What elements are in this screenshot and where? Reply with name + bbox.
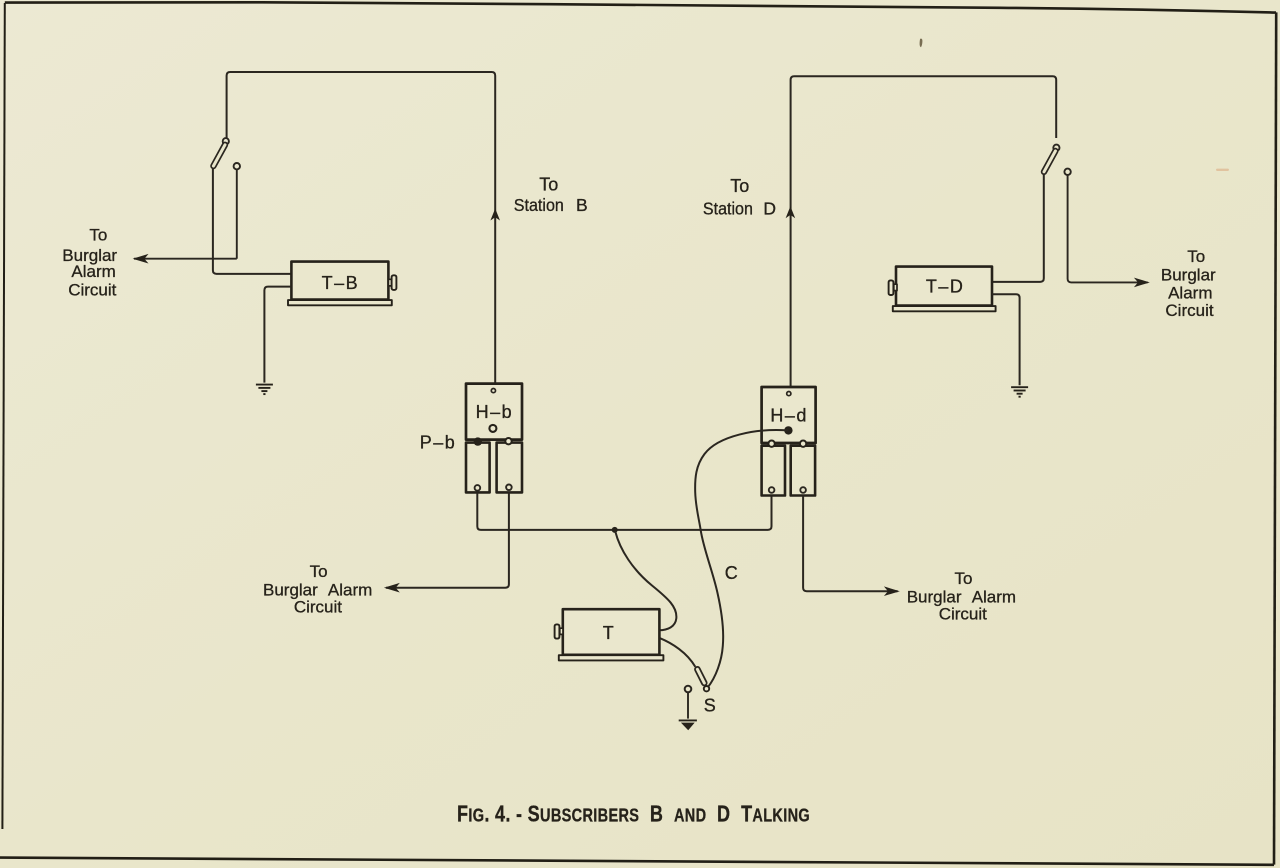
svg-text:To: To (539, 174, 558, 194)
svg-text:C: C (725, 563, 738, 583)
svg-text:Burglar: Burglar (1161, 265, 1216, 284)
svg-text:P – b: P – b (420, 433, 455, 453)
svg-text:To: To (955, 569, 973, 588)
svg-text:B: B (576, 195, 588, 215)
svg-text:H – b: H – b (476, 402, 512, 422)
svg-text:H – d: H – d (770, 405, 806, 425)
svg-text:Circuit: Circuit (68, 280, 116, 299)
svg-text:Circuit: Circuit (1165, 301, 1213, 320)
svg-text:D: D (763, 199, 776, 219)
svg-text:Alarm: Alarm (1168, 284, 1212, 303)
svg-text:Station: Station (514, 195, 564, 215)
svg-text:To: To (89, 226, 107, 245)
svg-text:To: To (1187, 247, 1205, 266)
svg-text:Circuit: Circuit (939, 604, 987, 623)
svg-text:T – D: T – D (926, 276, 963, 296)
svg-text:T: T (603, 623, 614, 643)
svg-text:Station: Station (703, 199, 753, 219)
svg-text:To: To (310, 562, 328, 581)
svg-text:S: S (704, 695, 716, 715)
svg-text:T – B: T – B (322, 273, 358, 293)
svg-text:Alarm: Alarm (71, 262, 115, 281)
svg-text:Circuit: Circuit (294, 597, 342, 616)
svg-text:To: To (730, 176, 749, 196)
svg-text:FIG. 4. - SUBSCRIBERS B AND: FIG. 4. - SUBSCRIBERS B AND D TALKING (457, 801, 810, 827)
